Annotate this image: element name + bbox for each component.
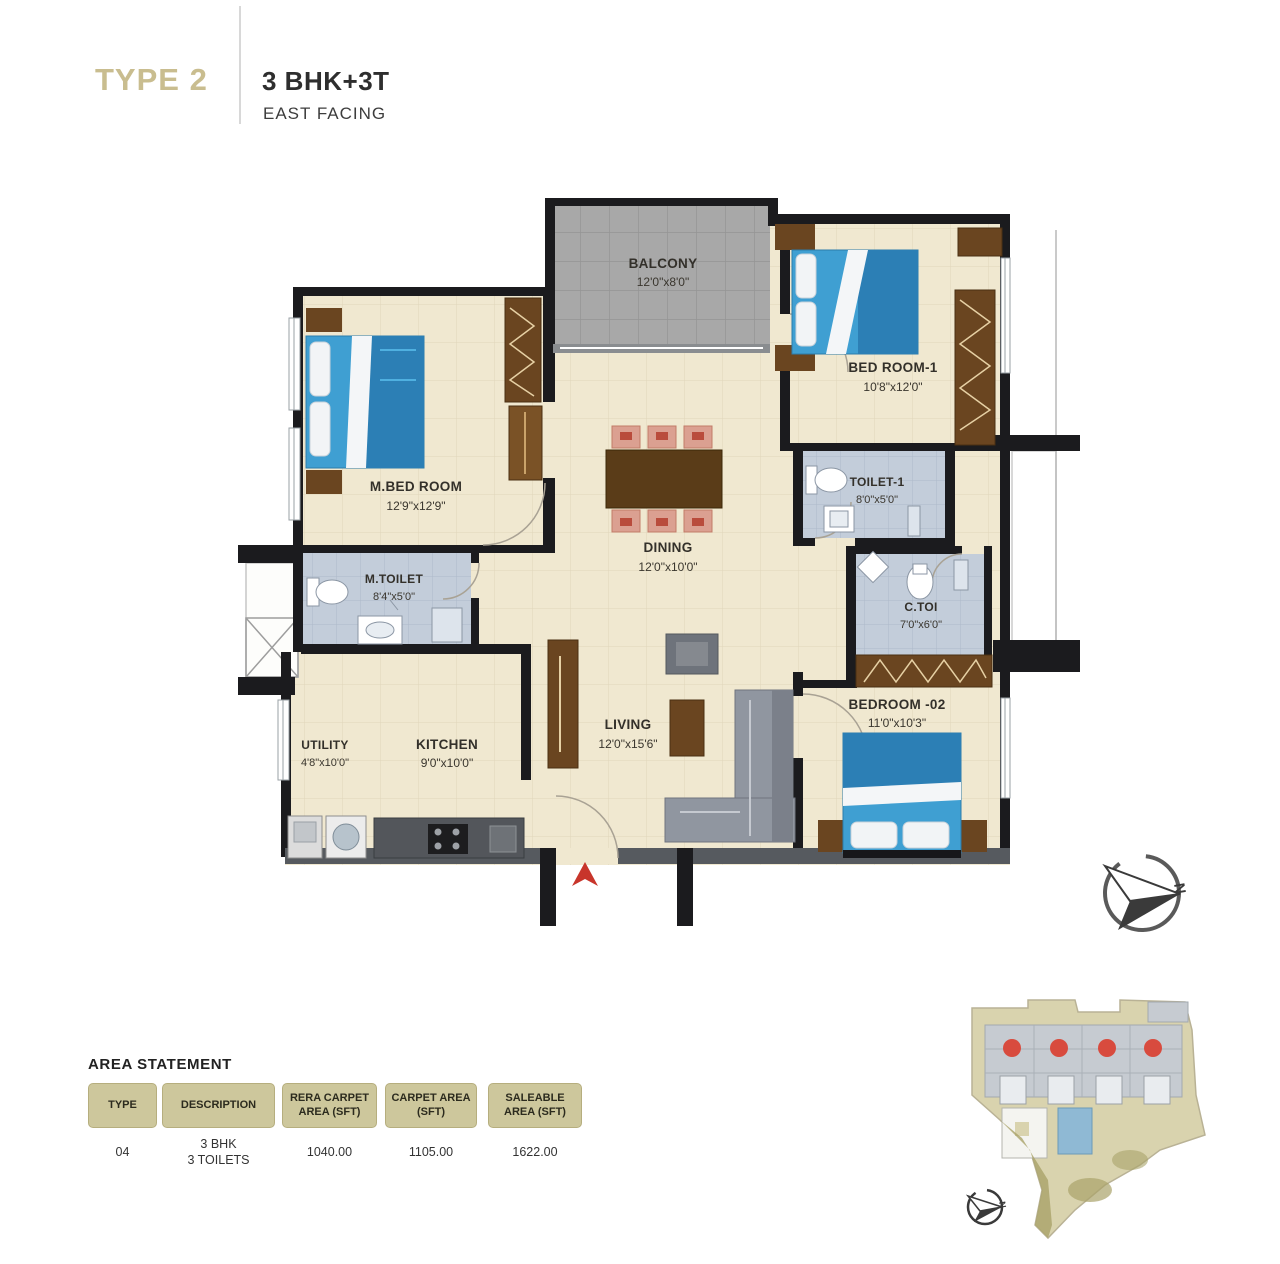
dining-label: DINING [643, 540, 692, 555]
mbedroom-label: M.BED ROOM [370, 479, 462, 494]
balcony-sliding-door [553, 344, 770, 353]
area-statement-title: AREA STATEMENT [88, 1056, 232, 1073]
balcony-label: BALCONY [629, 256, 698, 271]
cell-description: 3 BHK 3 TOILETS [162, 1136, 275, 1169]
floor-plan-sheet: TYPE 2 3 BHK+3T EAST FACING [0, 0, 1280, 1264]
svg-text:8'0"x5'0": 8'0"x5'0" [856, 494, 898, 506]
entry-arrow-icon [572, 862, 598, 886]
svg-text:8'4"x5'0": 8'4"x5'0" [373, 591, 415, 603]
cell-rera-carpet: 1040.00 [282, 1144, 377, 1160]
compass-icon: N [1105, 856, 1189, 930]
column-header-saleable: SALEABLE AREA (SFT) [488, 1083, 582, 1128]
column-header-description: DESCRIPTION [162, 1083, 275, 1128]
svg-text:7'0"x6'0": 7'0"x6'0" [900, 619, 942, 631]
utility-appliances [288, 816, 366, 858]
svg-text:12'9"x12'9": 12'9"x12'9" [386, 499, 445, 513]
svg-text:9'0"x10'0": 9'0"x10'0" [421, 756, 473, 770]
master-wardrobe [505, 298, 542, 480]
floor-plan-drawing: BALCONY 12'0"x8'0" BED ROOM-1 10'8"x12'0… [0, 0, 1280, 1264]
cell-type: 04 [88, 1144, 157, 1160]
column-header-rera-carpet: RERA CARPET AREA (SFT) [282, 1083, 377, 1128]
site-key-plan: N [968, 1000, 1205, 1238]
bedroom1-label: BED ROOM-1 [848, 360, 937, 375]
utility-label: UTILITY [301, 738, 348, 752]
mtoilet-label: M.TOILET [365, 572, 424, 586]
ctoi-label: C.TOI [904, 600, 937, 614]
svg-text:N: N [997, 1201, 1008, 1209]
svg-text:11'0"x10'3": 11'0"x10'3" [868, 716, 926, 730]
master-bed [306, 308, 424, 494]
living-label: LIVING [605, 717, 652, 732]
svg-text:12'0"x8'0": 12'0"x8'0" [637, 275, 689, 289]
kitchen-counter [374, 818, 524, 858]
dining-set [606, 426, 722, 532]
svg-text:10'8"x12'0": 10'8"x12'0" [863, 380, 922, 394]
svg-text:12'0"x15'6": 12'0"x15'6" [598, 737, 657, 751]
cell-carpet: 1105.00 [385, 1144, 477, 1160]
bedroom2-wardrobe [856, 655, 992, 687]
column-header-carpet: CARPET AREA (SFT) [385, 1083, 477, 1128]
bedroom2-label: BEDROOM -02 [848, 697, 945, 712]
svg-text:N: N [1170, 882, 1189, 896]
kitchen-label: KITCHEN [416, 737, 478, 752]
column-header-type: TYPE [88, 1083, 157, 1128]
cell-saleable: 1622.00 [488, 1144, 582, 1160]
svg-text:12'0"x10'0": 12'0"x10'0" [638, 560, 697, 574]
svg-text:4'8"x10'0": 4'8"x10'0" [301, 757, 349, 769]
toilet1-label: TOILET-1 [850, 475, 905, 489]
site-compass-icon: N [968, 1190, 1008, 1224]
